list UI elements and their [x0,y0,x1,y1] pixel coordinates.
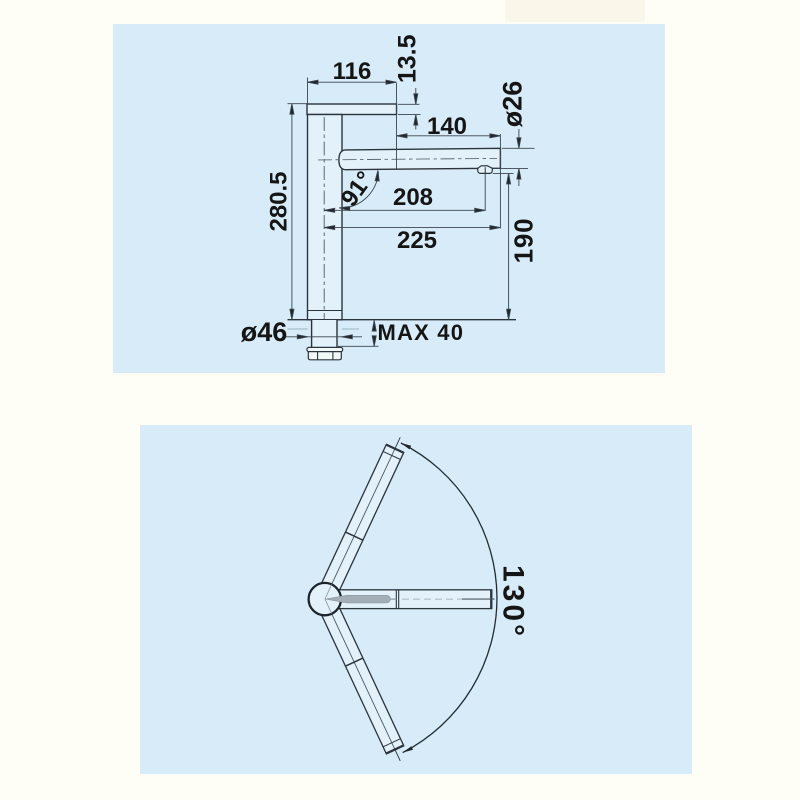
svg-text:ø46: ø46 [241,317,288,347]
svg-text:140: 140 [427,113,467,140]
svg-text:116: 116 [333,58,372,85]
svg-text:190: 190 [509,218,539,264]
svg-text:225: 225 [397,227,437,254]
svg-text:13.5: 13.5 [394,34,422,83]
svg-text:130°: 130° [497,565,530,639]
svg-text:208: 208 [393,184,433,211]
svg-text:280.5: 280.5 [266,171,293,231]
svg-text:MAX 40: MAX 40 [378,320,465,345]
svg-text:ø26: ø26 [498,81,528,128]
